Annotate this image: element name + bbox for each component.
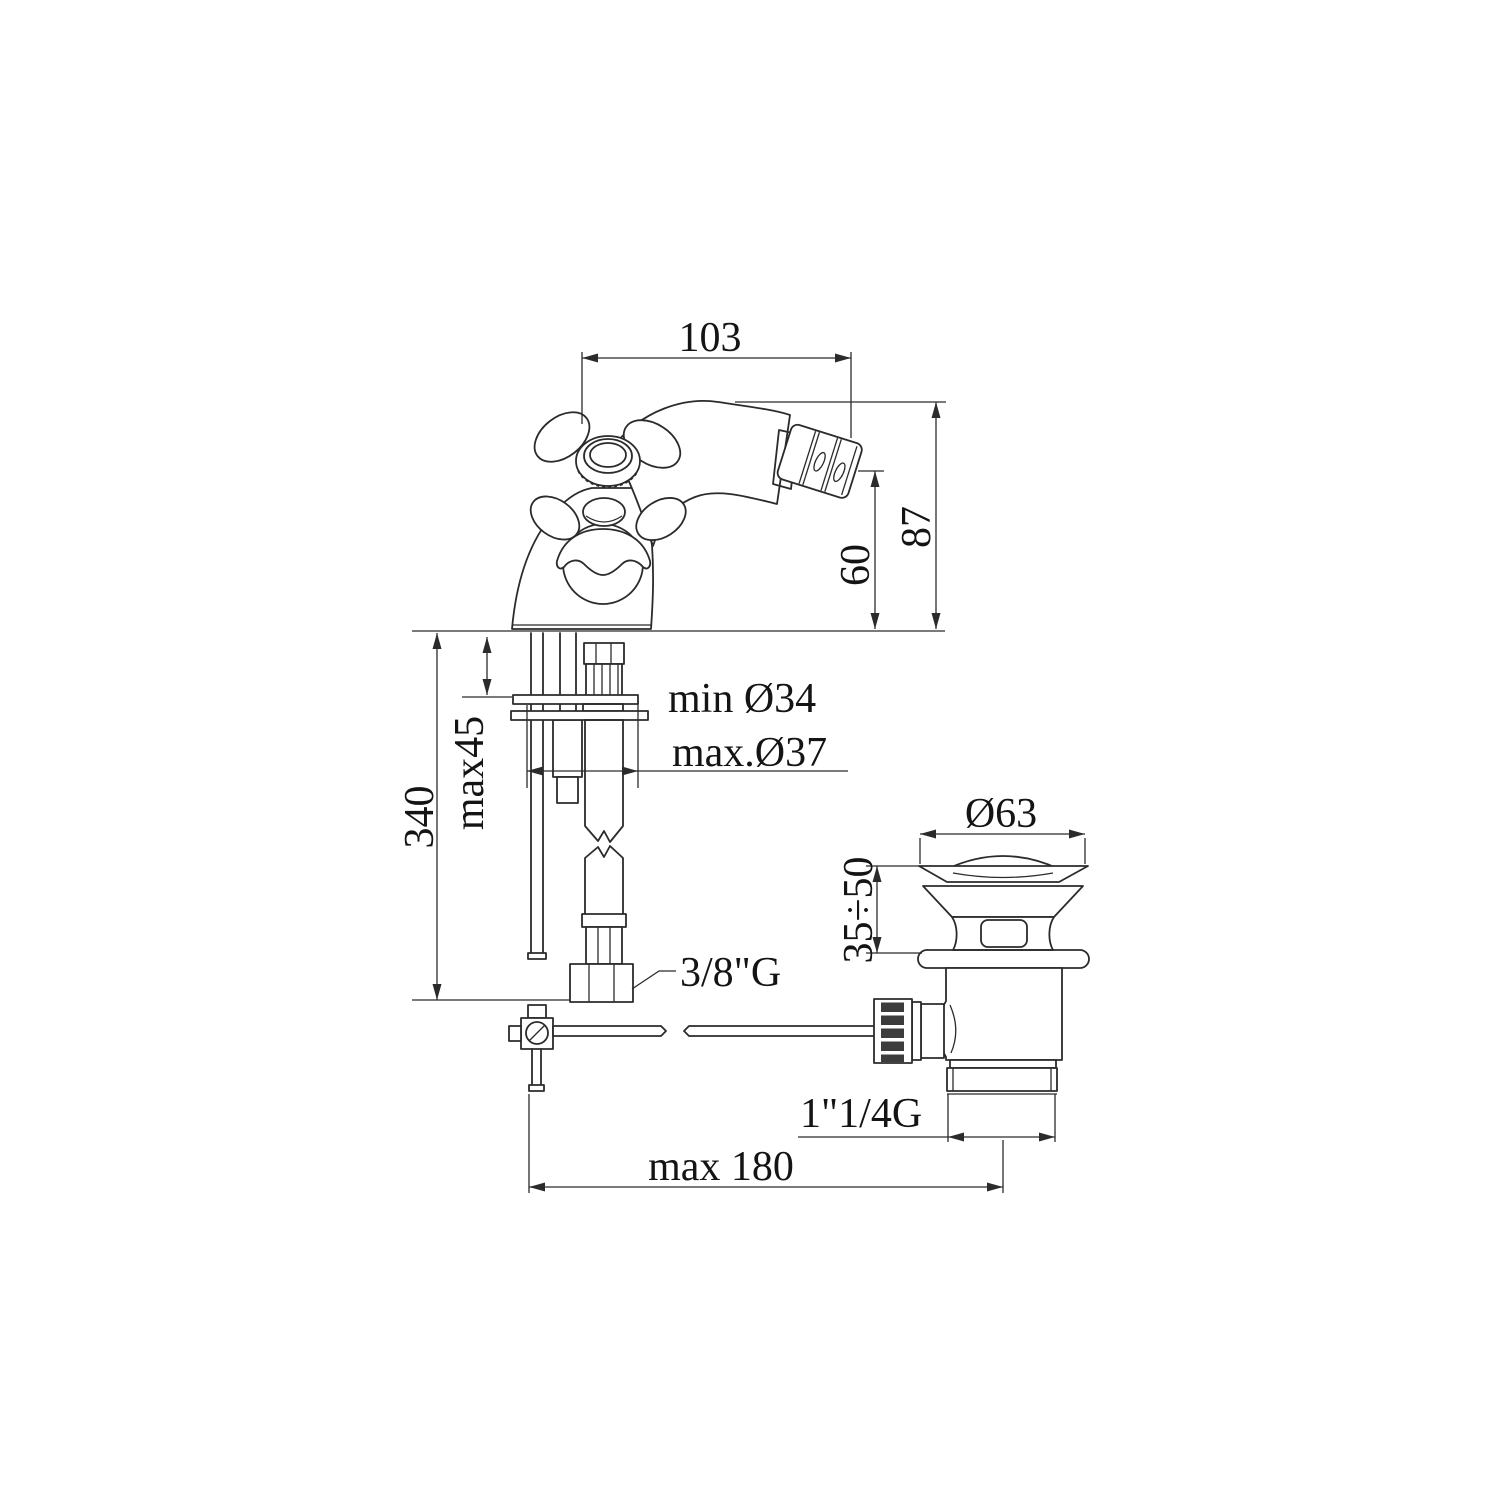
dim-deck-thickness: max45 (447, 637, 512, 830)
dim-waste-flange: Ø63 (920, 791, 1085, 864)
dim-label-supply-thread: 3/8"G (680, 950, 781, 996)
dim-label-hole-min: min Ø34 (668, 676, 816, 722)
pop-up-rod (528, 633, 546, 959)
inlet-cylinder (921, 1004, 944, 1058)
lock-nut-knurl (583, 704, 623, 711)
dim-label-waste-flange: Ø63 (965, 791, 1037, 837)
dim-waste-thread: 1"1/4G (798, 1091, 1055, 1142)
dim-rod-reach: max 180 (529, 1094, 1003, 1193)
dim-label-waste-range: 35÷50 (836, 856, 882, 963)
drawing-canvas: 103 87 60 340 max45 (0, 0, 1500, 1500)
dim-label-height-outlet: 60 (833, 544, 879, 586)
mounting-plate (511, 711, 648, 720)
waste-flange (919, 866, 1088, 882)
hose-ferrule (582, 914, 626, 927)
threaded-shank (584, 643, 624, 697)
hose-nut (570, 964, 633, 1002)
waste-tailpiece (947, 1068, 1057, 1091)
waste-cone (923, 886, 1083, 917)
pop-up-linkage (509, 1005, 876, 1091)
dim-label-spout-reach: 103 (679, 315, 742, 361)
dim-label-waste-thread: 1"1/4G (800, 1091, 922, 1137)
drain-waste (874, 856, 1089, 1094)
dim-supply-thread: 3/8"G (632, 950, 781, 996)
waste-window (981, 920, 1027, 947)
dim-label-height-total: 87 (894, 506, 940, 548)
dim-label-deck-thickness: max45 (447, 716, 493, 830)
horizontal-rod (553, 1026, 666, 1036)
dim-waste-range: 35÷50 (836, 856, 922, 963)
waste-body (938, 968, 1062, 1060)
horizontal-rod (684, 1026, 876, 1036)
dim-label-hole-max: max.Ø37 (672, 730, 827, 776)
under-deck (511, 633, 648, 1002)
dim-label-supply-length: 340 (397, 786, 443, 849)
waste-lower-flange (918, 950, 1089, 968)
drawing-page: 103 87 60 340 max45 (0, 0, 1500, 1500)
mounting-washer (513, 695, 638, 704)
dim-label-rod-reach: max 180 (648, 1144, 794, 1190)
hose-end (586, 927, 622, 964)
